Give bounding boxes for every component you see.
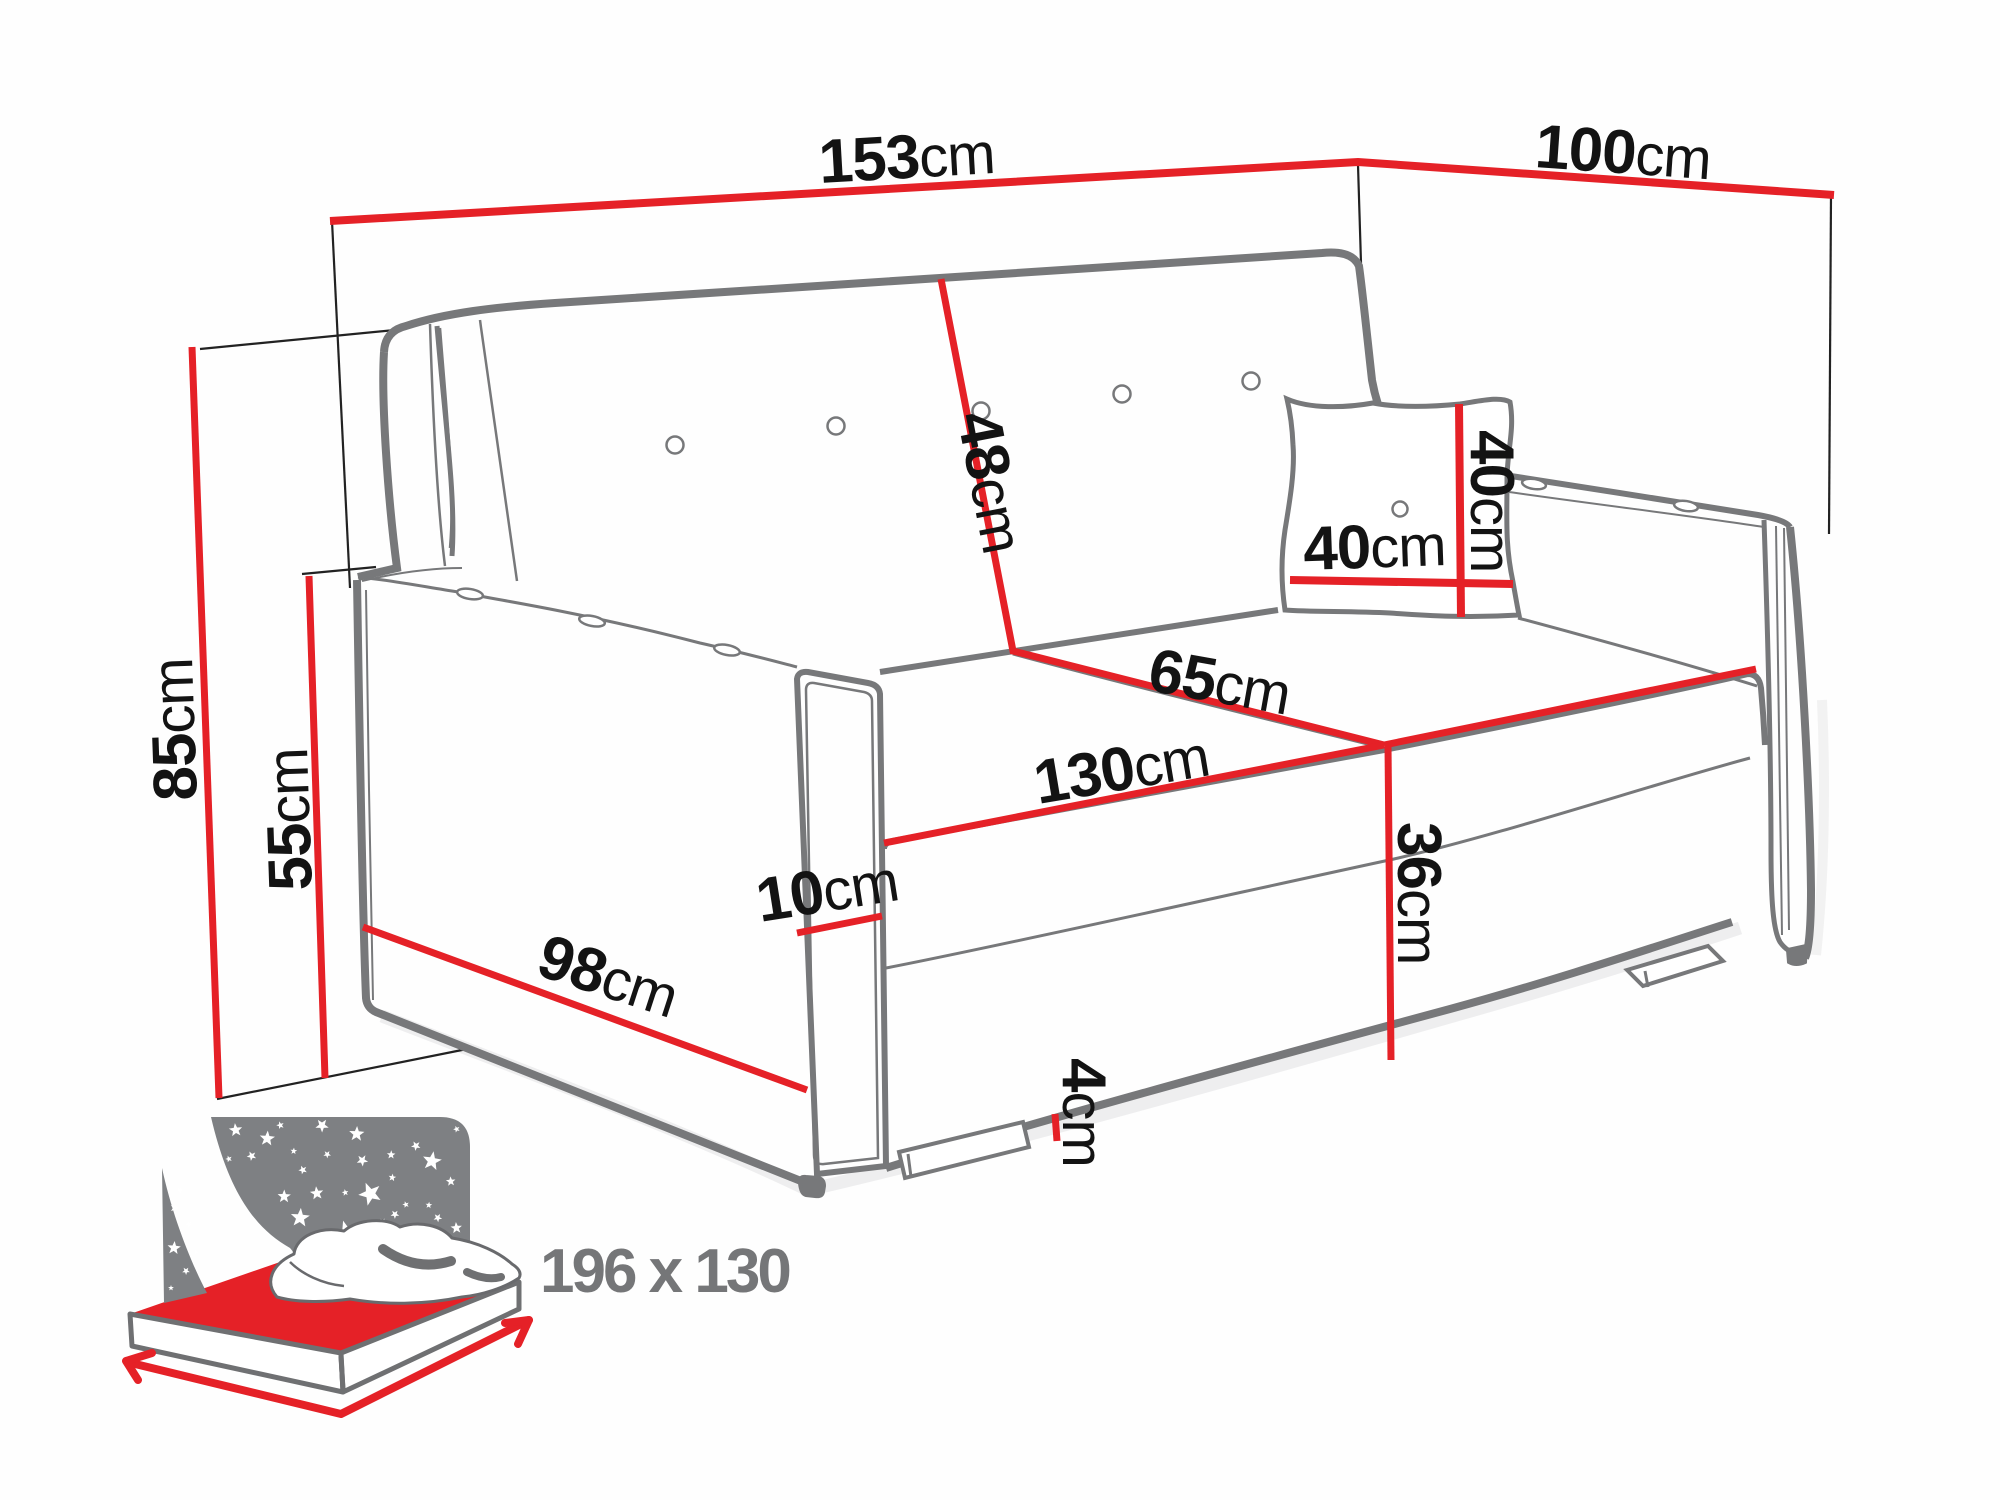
svg-text:196 x 130: 196 x 130 xyxy=(540,1237,789,1306)
svg-text:55cm: 55cm xyxy=(252,747,326,892)
svg-text:40cm: 40cm xyxy=(1457,430,1526,572)
svg-text:4cm: 4cm xyxy=(1049,1058,1118,1167)
svg-text:85cm: 85cm xyxy=(137,657,211,802)
svg-text:40cm: 40cm xyxy=(1302,510,1447,584)
svg-text:36cm: 36cm xyxy=(1384,822,1453,964)
svg-text:153cm: 153cm xyxy=(817,118,996,197)
